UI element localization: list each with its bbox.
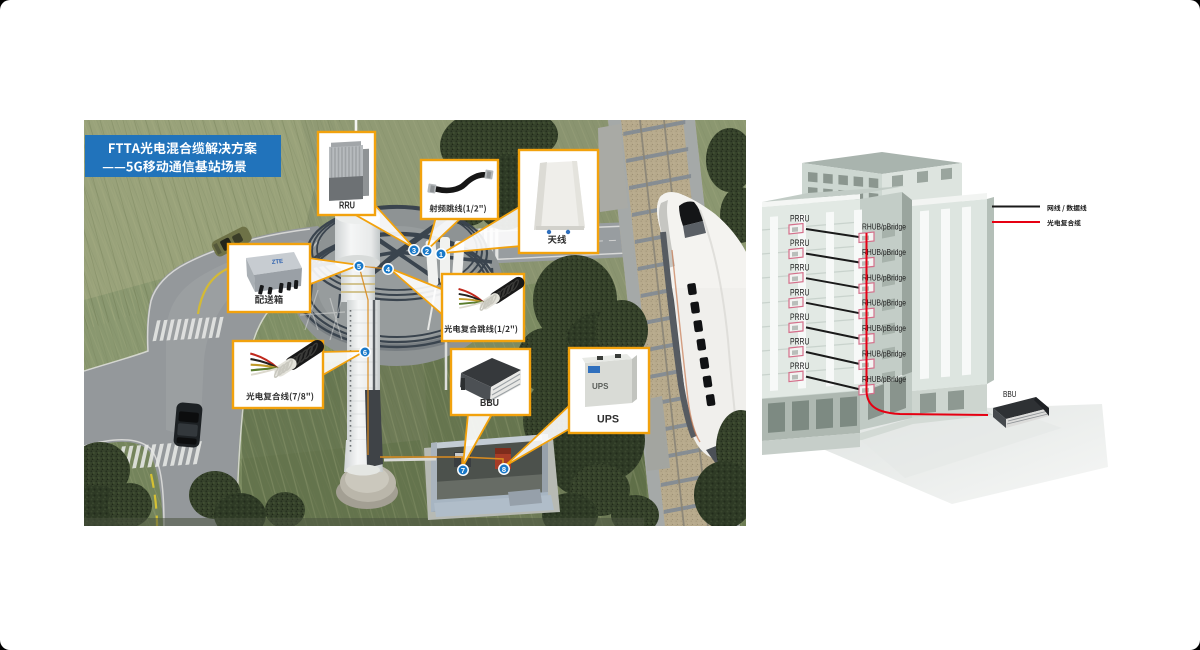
svg-text:7: 7 <box>461 466 465 475</box>
svg-text:RHUB/pBridge: RHUB/pBridge <box>862 349 906 359</box>
svg-text:3: 3 <box>412 246 416 255</box>
svg-text:PRRU: PRRU <box>790 361 810 371</box>
svg-text:RHUB/pBridge: RHUB/pBridge <box>862 374 906 384</box>
svg-text:PRRU: PRRU <box>790 263 810 273</box>
svg-text:PRRU: PRRU <box>790 337 810 347</box>
svg-text:RHUB/pBridge: RHUB/pBridge <box>862 247 906 257</box>
svg-text:1: 1 <box>439 250 443 259</box>
svg-text:PRRU: PRRU <box>790 312 810 322</box>
svg-text:5: 5 <box>357 262 361 271</box>
svg-text:RHUB/pBridge: RHUB/pBridge <box>862 298 906 308</box>
svg-text:RHUB/pBridge: RHUB/pBridge <box>862 222 906 232</box>
svg-text:UPS: UPS <box>592 382 609 391</box>
svg-text:RRU: RRU <box>339 201 355 212</box>
svg-text:ZTE: ZTE <box>272 259 284 266</box>
svg-text:RHUB/pBridge: RHUB/pBridge <box>862 323 906 333</box>
svg-text:PRRU: PRRU <box>790 287 810 297</box>
svg-text:PRRU: PRRU <box>790 238 810 248</box>
svg-text:6: 6 <box>363 348 367 357</box>
svg-text:UPS: UPS <box>597 414 619 426</box>
svg-text:2: 2 <box>425 247 429 256</box>
svg-text:BBU: BBU <box>1003 389 1017 399</box>
svg-text:RHUB/pBridge: RHUB/pBridge <box>862 272 906 282</box>
svg-text:8: 8 <box>502 465 506 474</box>
svg-text:PRRU: PRRU <box>790 214 810 224</box>
svg-text:BBU: BBU <box>480 398 499 409</box>
